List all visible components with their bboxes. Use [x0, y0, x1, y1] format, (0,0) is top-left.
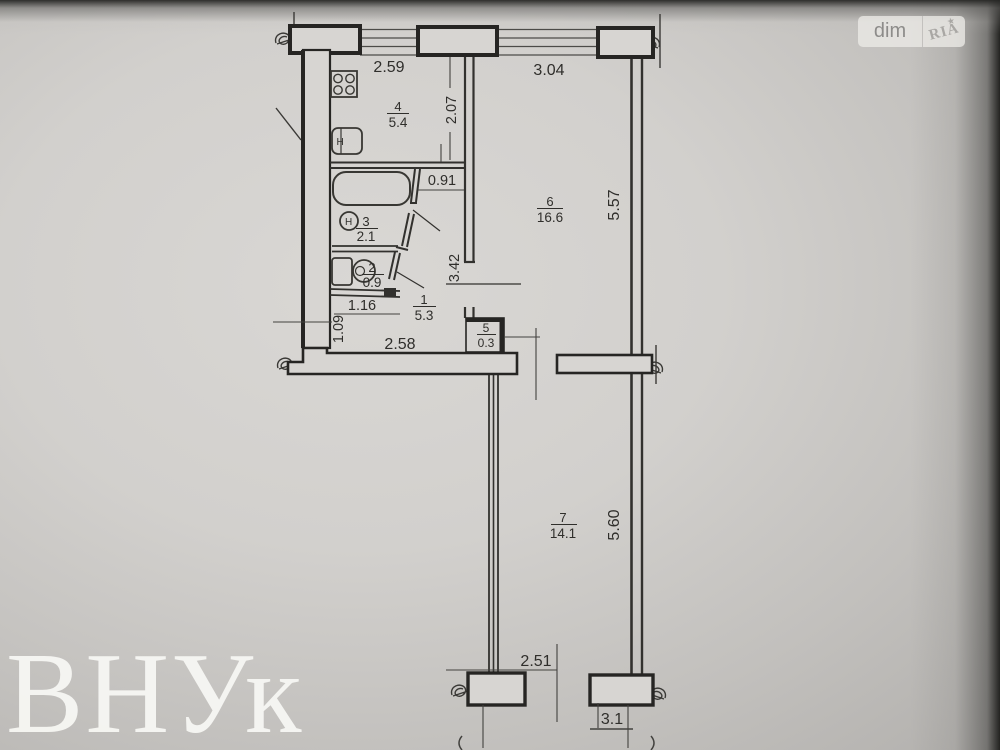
floorplan-photo: ВНУк [0, 0, 1000, 750]
svg-text:H: H [345, 217, 352, 228]
logo-ria-text: RIA [927, 20, 961, 44]
svg-text:5: 5 [483, 321, 490, 335]
svg-text:H: H [337, 137, 344, 148]
svg-text:1: 1 [420, 292, 427, 307]
dim-hall-width: 2.58 [384, 336, 415, 353]
svg-text:2: 2 [368, 260, 375, 275]
bathtub-icon [333, 172, 410, 205]
room-label-bedroom: 7 14.1 [550, 510, 577, 541]
dim-kitchen-door: 0.91 [428, 173, 456, 189]
dim-bedroom-depth: 5.60 [606, 509, 623, 540]
dim-balcony-span: 2.51 [520, 653, 551, 670]
dim-hall-offset: 1.09 [331, 315, 347, 343]
room-label-wc: 2 0.9 [362, 260, 384, 290]
bath-tap-icon: H [340, 212, 358, 230]
svg-text:5.4: 5.4 [389, 115, 408, 130]
svg-text:5.3: 5.3 [415, 308, 434, 323]
dim-living-depth: 5.57 [606, 189, 623, 220]
room-label-bath: 3 2.1 [356, 214, 378, 244]
room-label-living: 6 16.6 [537, 194, 563, 225]
dimension-labels: 2.59 3.04 2.07 0.91 3.42 5.57 1.16 1.09 … [331, 59, 623, 728]
dim-balcony-width: 3.1 [601, 711, 623, 728]
dim-hall-depth: 3.42 [447, 254, 463, 282]
svg-text:3: 3 [362, 214, 369, 229]
room-label-kitchen: 4 5.4 [387, 99, 409, 130]
room-label-closet: 5 0.3 [477, 321, 496, 350]
svg-text:2.1: 2.1 [357, 229, 376, 244]
svg-text:6: 6 [546, 194, 553, 209]
dim-kitchen-depth: 2.07 [444, 96, 460, 124]
room-label-hall: 1 5.3 [413, 292, 436, 323]
dim-window-right: 3.04 [533, 62, 564, 79]
svg-text:4: 4 [394, 99, 401, 114]
dim-ria-logo: dim ★ RIA [858, 16, 965, 47]
svg-text:14.1: 14.1 [550, 526, 576, 541]
logo-dim-text: dim [858, 16, 923, 47]
dim-window-left: 2.59 [373, 59, 404, 76]
dim-wc-width: 1.16 [348, 298, 376, 314]
svg-text:0.9: 0.9 [363, 275, 382, 290]
svg-text:0.3: 0.3 [478, 336, 495, 350]
kitchen-sink-icon: H [332, 128, 362, 154]
floorplan-drawing: H H [0, 0, 1000, 750]
svg-text:16.6: 16.6 [537, 210, 563, 225]
stove-icon [331, 71, 357, 97]
svg-text:7: 7 [559, 510, 566, 525]
